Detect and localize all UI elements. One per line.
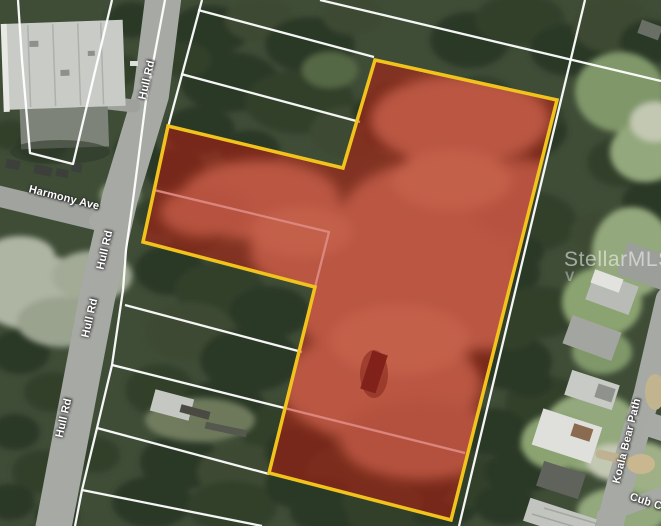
stellar-mls-watermark-mark: V xyxy=(565,268,574,284)
stellar-mls-watermark: StellarMLS xyxy=(564,248,661,272)
mls-satellite-map: Hull Rd Hull Rd Hull Rd Hull Rd Hull Rd … xyxy=(0,0,661,526)
